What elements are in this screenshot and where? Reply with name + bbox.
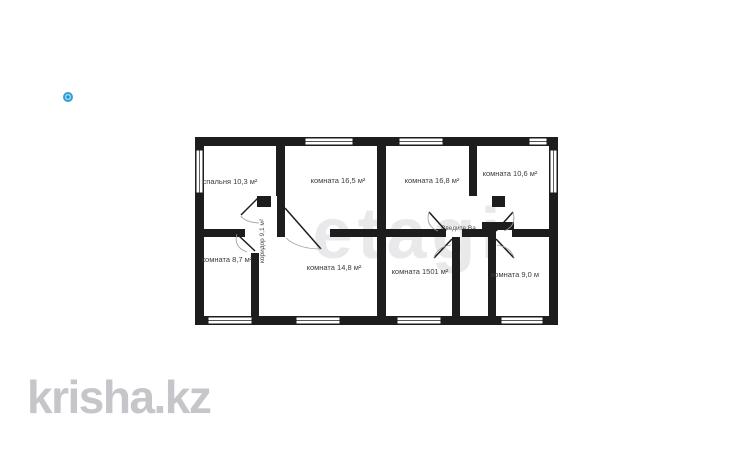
room-label-10-6: комната 10,6 м² (483, 169, 538, 178)
room-label-16-8: комната 16,8 м² (405, 176, 460, 185)
room-label-bedroom: спальня 10,3 м² (203, 177, 258, 186)
room-label-15-01: комната 1501 м² (392, 267, 449, 276)
room-label-16-5: комната 16,5 м² (311, 176, 366, 185)
map-pin-icon (63, 92, 73, 102)
room-label-14-8: комната 14,8 м² (307, 263, 362, 272)
room-label-8-7: комната 8,7 м² (202, 255, 253, 264)
page: etagi Введите Ва (0, 0, 750, 470)
floorplan-image: etagi Введите Ва (190, 130, 565, 335)
room-label-corridor: коридор 9,1 м² (259, 218, 266, 263)
krisha-watermark: krisha.kz (27, 374, 210, 420)
room-label-9-0: комната 9,0 м (491, 270, 539, 279)
